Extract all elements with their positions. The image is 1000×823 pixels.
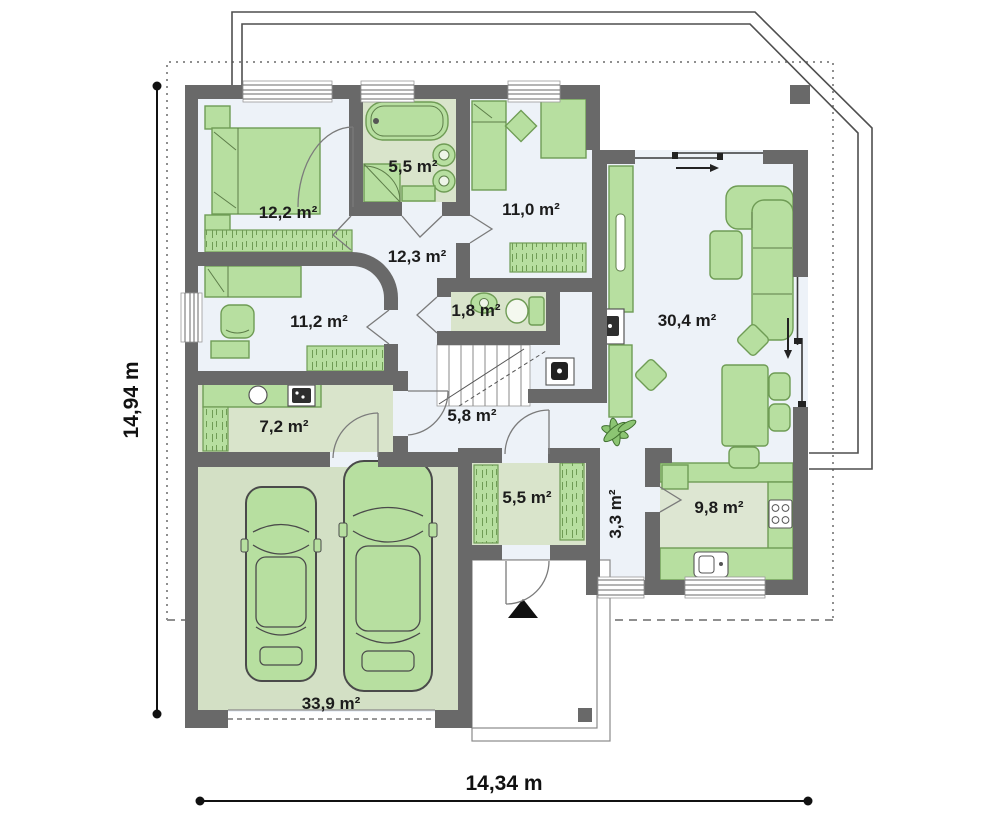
chair (769, 404, 790, 431)
window (361, 81, 414, 102)
cooktop (769, 500, 792, 528)
floor-plan-drawing: 12,2 m² 5,5 m² 11,0 m² 12,3 m² 11,2 m² 1… (0, 0, 1000, 823)
single-bed (472, 101, 506, 190)
dimension-width-label: 14,34 m (465, 772, 542, 795)
wardrobe-closet (307, 346, 393, 371)
bathtub (366, 102, 448, 140)
nightstand (205, 106, 230, 129)
room-label-kitchen: 9,8 m² (694, 498, 743, 517)
room-label-garage: 33,9 m² (302, 694, 361, 713)
kitchen-sink (694, 552, 728, 577)
fridge (662, 465, 688, 489)
chair (729, 447, 759, 468)
window (181, 293, 202, 342)
wardrobe-closet (205, 230, 352, 252)
bath-cabinet (402, 186, 435, 201)
window (685, 577, 765, 598)
room-label-bathroom: 5,5 m² (388, 157, 437, 176)
terrace-pillar (790, 85, 810, 104)
desk (211, 341, 249, 358)
wardrobe-closet (510, 243, 586, 272)
chair (769, 373, 790, 400)
room-label-utility: 7,2 m² (259, 417, 308, 436)
single-bed (205, 266, 301, 297)
dimension-line-left: 14,94 m (120, 82, 162, 719)
laundry-sink (249, 386, 267, 404)
boiler (546, 358, 574, 385)
room-label-pantry: 3,3 m² (606, 489, 625, 538)
room-label-toilet: 1,8 m² (451, 301, 500, 320)
room-label-bedroom-1: 12,2 m² (259, 203, 318, 222)
washing-machine (288, 385, 315, 406)
cabinet (609, 345, 632, 417)
dimension-height-label: 14,94 m (120, 361, 143, 438)
closet (474, 465, 498, 543)
car-small (241, 487, 321, 681)
window (243, 81, 332, 102)
room-label-corridor: 12,3 m² (388, 247, 447, 266)
coffee-table (710, 231, 742, 279)
floor-plan-page: 12,2 m² 5,5 m² 11,0 m² 12,3 m² 11,2 m² 1… (0, 0, 1000, 823)
room-label-living-room: 30,4 m² (658, 311, 717, 330)
desk (541, 99, 586, 158)
dining-table (722, 365, 768, 446)
window (508, 81, 560, 102)
room-label-wardrobe: 5,5 m² (502, 488, 551, 507)
room-label-hall: 5,8 m² (447, 406, 496, 425)
armchair (221, 305, 254, 338)
closet (560, 463, 584, 540)
dimension-line-bottom: 14,34 m (196, 772, 813, 806)
window (598, 577, 644, 598)
porch-pillar (578, 708, 592, 722)
room-label-bedroom-2: 11,0 m² (502, 200, 560, 219)
car-large (339, 461, 437, 691)
room-label-bedroom-3: 11,2 m² (290, 312, 348, 331)
cabinet (203, 407, 228, 451)
cabinet-handle (616, 214, 625, 271)
